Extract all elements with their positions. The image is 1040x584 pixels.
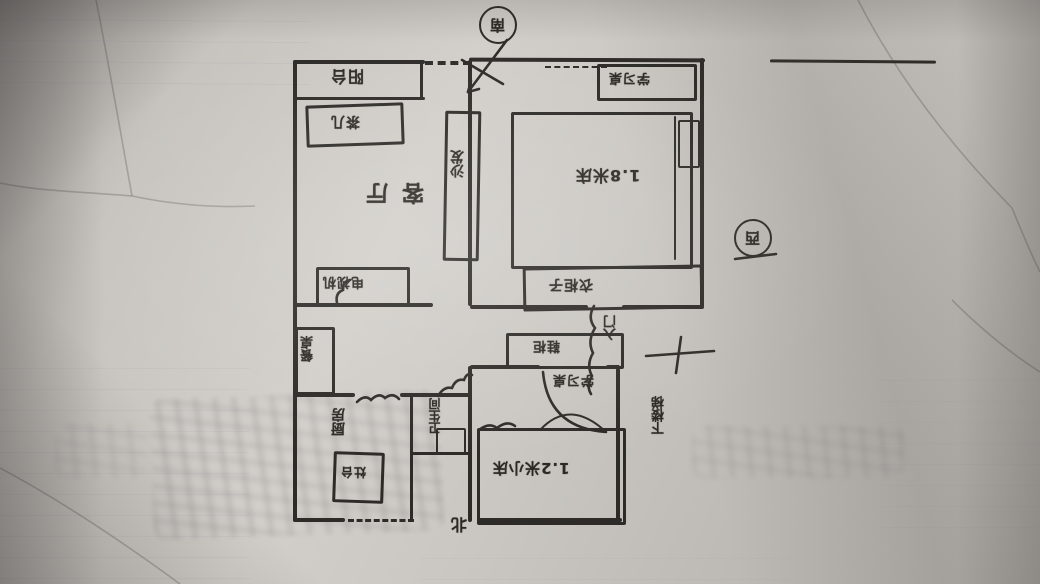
wall-squiggle <box>479 423 515 430</box>
compass-underline <box>735 254 776 259</box>
ink-strokes <box>0 0 1040 584</box>
floorplan-photo: 阳台 茶几 客厅 沙发 电视机 餐桌 厨房 灶台 卫生间 学习桌 1.8米床 衣… <box>0 0 1040 584</box>
entrance-door-squiggle <box>589 306 595 394</box>
wall-squiggle <box>438 374 472 396</box>
wall-squiggle <box>357 395 399 402</box>
wall-squiggle <box>337 280 350 303</box>
compass-arrow <box>462 60 503 84</box>
